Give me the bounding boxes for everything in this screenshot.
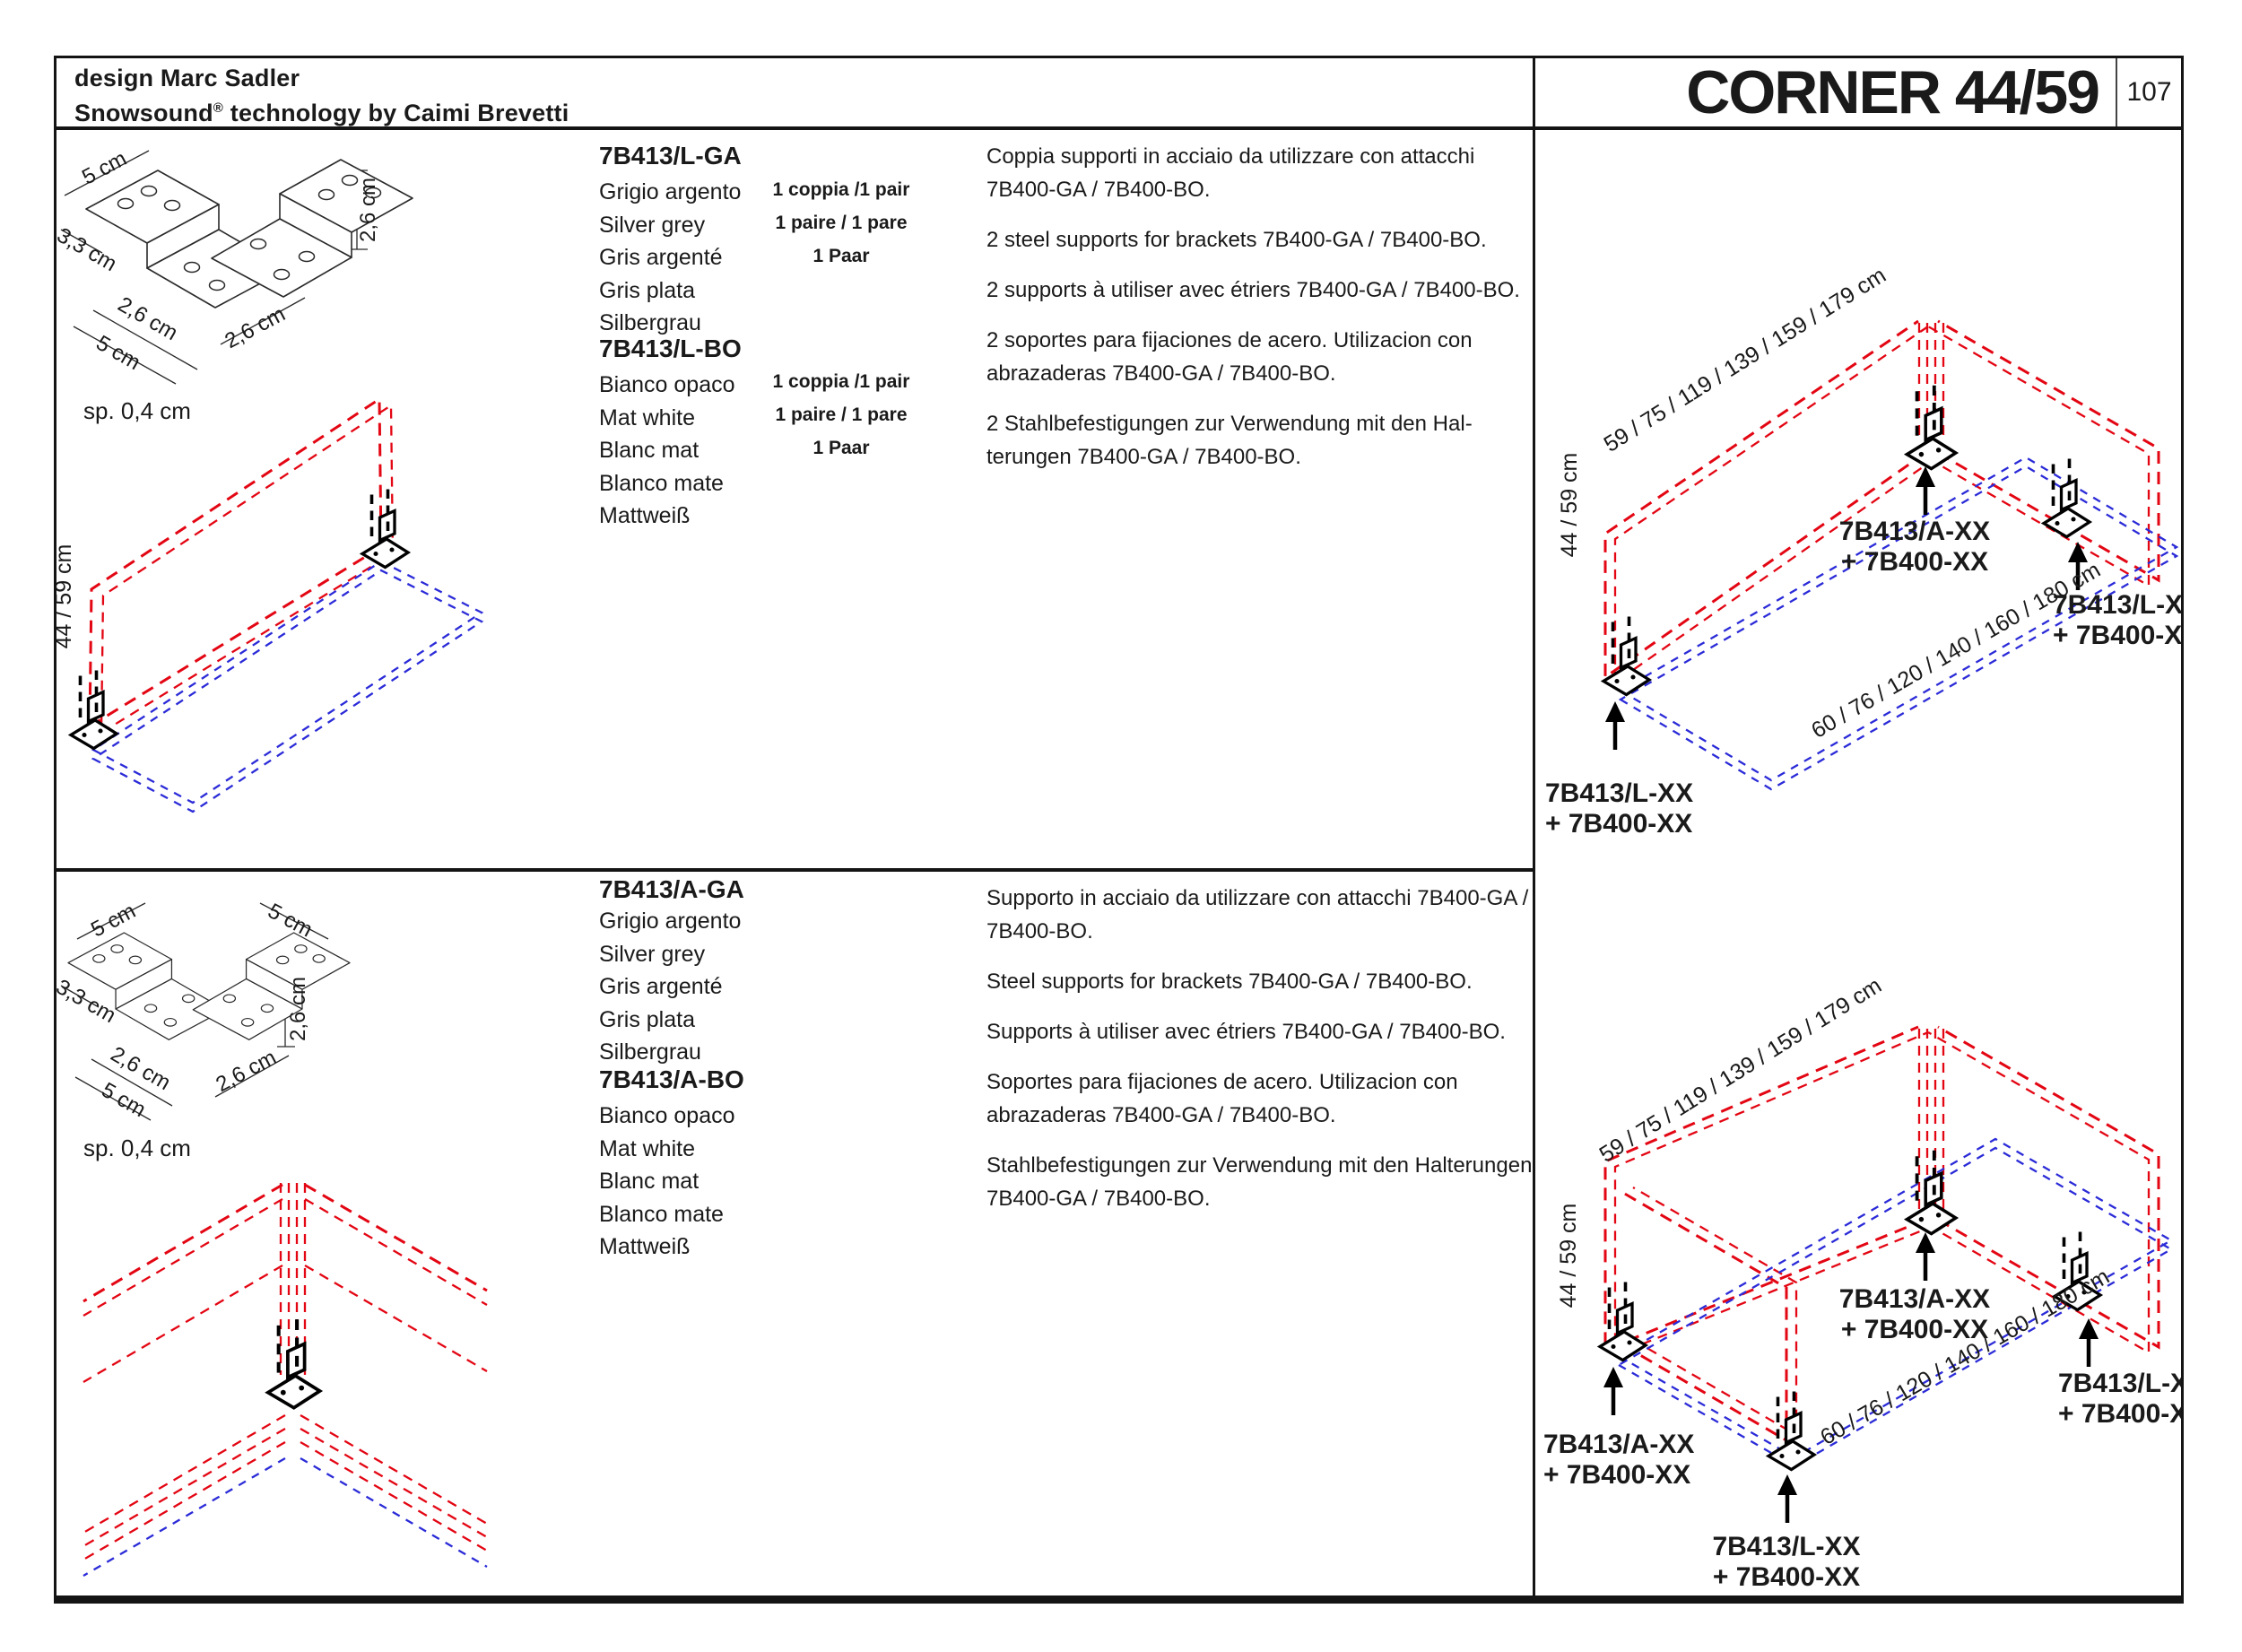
tech-drawing-A-bracket: 5 cm 5 cm 3,3 cm 2,6 cm 5 cm 2,6 cm 2,6 … [61, 892, 357, 1135]
description-en: 2 steel supports for brackets 7B400-GA /… [986, 223, 1534, 256]
color-option: Gris argenté [599, 970, 741, 1004]
description-column: Coppia supporti in acciaio da utilizzare… [986, 140, 1534, 491]
lower-panels-red [83, 1415, 487, 1560]
front-wall-red [1623, 1187, 1796, 1440]
description-en: Steel supports for brackets 7B400-GA / 7… [986, 965, 1534, 998]
left-wall-red [1605, 321, 1935, 683]
dim-label: 3,3 cm [54, 223, 121, 276]
iso-diagram-corner-junction [56, 1160, 523, 1545]
product-code: 7B413/L-GA [599, 142, 742, 170]
dim-label: 5 cm [78, 146, 131, 189]
color-option: Silver grey [599, 938, 741, 971]
brand-name: Snowsound [74, 100, 213, 126]
page-frame: design Marc Sadler Snowsound® technology… [54, 56, 2184, 1604]
color-option: Grigio argento [599, 176, 741, 209]
length-label: 59 / 75 / 119 / 139 / 159 / 179 cm [1600, 263, 1890, 457]
thickness-label: sp. 0,4 cm [83, 1135, 191, 1162]
product-colors: Grigio argento Silver grey Gris argenté … [599, 176, 741, 340]
description-es: Soportes para fijaciones de acero. Utili… [986, 1065, 1534, 1132]
product-code: 7B413/A-BO [599, 1065, 744, 1094]
color-option: Bianco opaco [599, 369, 735, 402]
color-option: Mattweiß [599, 1230, 735, 1264]
part-label-front: + 7B400-XX [1713, 1562, 1860, 1592]
product-code: 7B413/A-GA [599, 875, 744, 904]
dim-label: 2,6 cm [114, 292, 182, 345]
height-label: 44 / 59 cm [1557, 453, 1582, 558]
quantity-block: 1 coppia /1 pair 1 paire / 1 pare 1 Paar [760, 173, 922, 273]
color-option: Grigio argento [599, 905, 741, 938]
part-label-center: + 7B400-XX [1841, 1315, 1988, 1344]
description-it: Coppia supporti in acciaio da utilizzare… [986, 140, 1534, 206]
dim-label: 2,6 cm [212, 1046, 280, 1098]
part-label-left: + 7B400-XX [1543, 1460, 1690, 1490]
part-label-right: 7B413/L-XX [2053, 590, 2184, 620]
quantity-line: 1 coppia /1 pair [760, 173, 922, 206]
product-code: 7B413/L-BO [599, 335, 742, 363]
design-line: design Marc Sadler [74, 63, 569, 93]
description-de: Stahlbefestigungen zur Verwendung mit de… [986, 1149, 1534, 1215]
color-option: Mat white [599, 402, 735, 435]
color-option: Gris plata [599, 1004, 741, 1037]
product-colors: Grigio argento Silver grey Gris argenté … [599, 905, 741, 1069]
base-label: 60 / 76 / 120 / 140 / 160 / 180 cm [1807, 557, 2105, 743]
height-label: 44 / 59 cm [1556, 1204, 1581, 1309]
part-label-center: 7B413/A-XX [1839, 517, 1990, 546]
quantity-line: 1 paire / 1 pare [760, 206, 922, 239]
part-label-left: 7B413/L-XX [1545, 778, 1693, 808]
install-diagram-u-shape: 59 / 75 / 119 / 139 / 159 / 179 cm 44 / … [1538, 942, 2184, 1593]
registered-mark: ® [213, 100, 223, 116]
color-option: Blanco mate [599, 467, 735, 500]
part-label-right: + 7B400-XX [2058, 1399, 2184, 1429]
vertical-panel-red [90, 399, 393, 733]
description-fr: 2 supports à utiliser avec étriers 7B400… [986, 274, 1534, 307]
brand-line: Snowsound® technology by Caimi Brevetti [74, 93, 569, 128]
section-divider [56, 868, 1533, 872]
quantity-line: 1 paire / 1 pare [760, 398, 922, 431]
description-column: Supporto in acciaio da utilizzare con at… [986, 882, 1534, 1232]
quantity-block: 1 coppia /1 pair 1 paire / 1 pare 1 Paar [760, 365, 922, 465]
page-number: 107 [2116, 58, 2181, 126]
dim-label: 2,6 cm [356, 178, 380, 242]
description-it: Supporto in acciaio da utilizzare con at… [986, 882, 1534, 948]
part-label-center: 7B413/A-XX [1839, 1284, 1990, 1314]
iso-height-label: 44 / 59 cm [54, 544, 76, 649]
color-option: Mattweiß [599, 500, 735, 533]
tech-drawing-L-brackets: 5 cm 3,3 cm 2,6 cm 5 cm 2,6 cm 2,6 cm [61, 143, 438, 395]
color-option: Blanc mat [599, 434, 735, 467]
dim-label: 5 cm [91, 331, 144, 375]
color-option: Blanco mate [599, 1198, 735, 1231]
quantity-line: 1 coppia /1 pair [760, 365, 922, 398]
color-option: Silbergrau [599, 1036, 741, 1069]
description-de: 2 Stahlbefestigungen zur Verwendung mit … [986, 407, 1534, 474]
designer-credit: design Marc Sadler Snowsound® technology… [74, 63, 569, 128]
base-panel-blue [93, 561, 482, 812]
part-label-left: + 7B400-XX [1545, 809, 1692, 839]
part-label-left: 7B413/A-XX [1543, 1430, 1694, 1459]
product-colors: Bianco opaco Mat white Blanc mat Blanco … [599, 369, 735, 533]
length-label: 59 / 75 / 119 / 139 / 159 / 179 cm [1595, 973, 1886, 1168]
dim-label: 2,6 cm [286, 977, 310, 1041]
color-option: Blanc mat [599, 1165, 735, 1198]
quantity-line: 1 Paar [760, 431, 922, 465]
brand-suffix: technology by Caimi Brevetti [223, 100, 569, 126]
color-option: Bianco opaco [599, 1100, 735, 1133]
product-colors: Bianco opaco Mat white Blanc mat Blanco … [599, 1100, 735, 1264]
color-option: Gris plata [599, 274, 741, 308]
color-option: Gris argenté [599, 241, 741, 274]
color-option: Silver grey [599, 209, 741, 242]
page-header: design Marc Sadler Snowsound® technology… [56, 58, 2181, 130]
lower-base-blue [83, 1458, 487, 1576]
color-option: Mat white [599, 1133, 735, 1166]
page-title: CORNER 44/59 [1686, 58, 2099, 126]
part-label-right: 7B413/L-XX [2058, 1369, 2184, 1398]
install-diagram-corner: 59 / 75 / 119 / 139 / 159 / 179 cm 44 / … [1538, 251, 2184, 861]
dim-label: 2,6 cm [221, 302, 289, 354]
part-label-front: 7B413/L-XX [1712, 1532, 1860, 1561]
upper-panels-red [83, 1185, 487, 1382]
part-label-center: + 7B400-XX [1841, 547, 1988, 577]
description-fr: Supports à utiliser avec étriers 7B400-G… [986, 1015, 1534, 1048]
iso-diagram-straight-panel: 44 / 59 cm [56, 386, 523, 825]
dim-label: 5 cm [87, 899, 140, 942]
catalog-page: design Marc Sadler Snowsound® technology… [0, 0, 2242, 1652]
quantity-line: 1 Paar [760, 239, 922, 273]
part-label-right: + 7B400-XX [2053, 621, 2184, 650]
description-es: 2 soportes para fijaciones de acero. Uti… [986, 324, 1534, 390]
